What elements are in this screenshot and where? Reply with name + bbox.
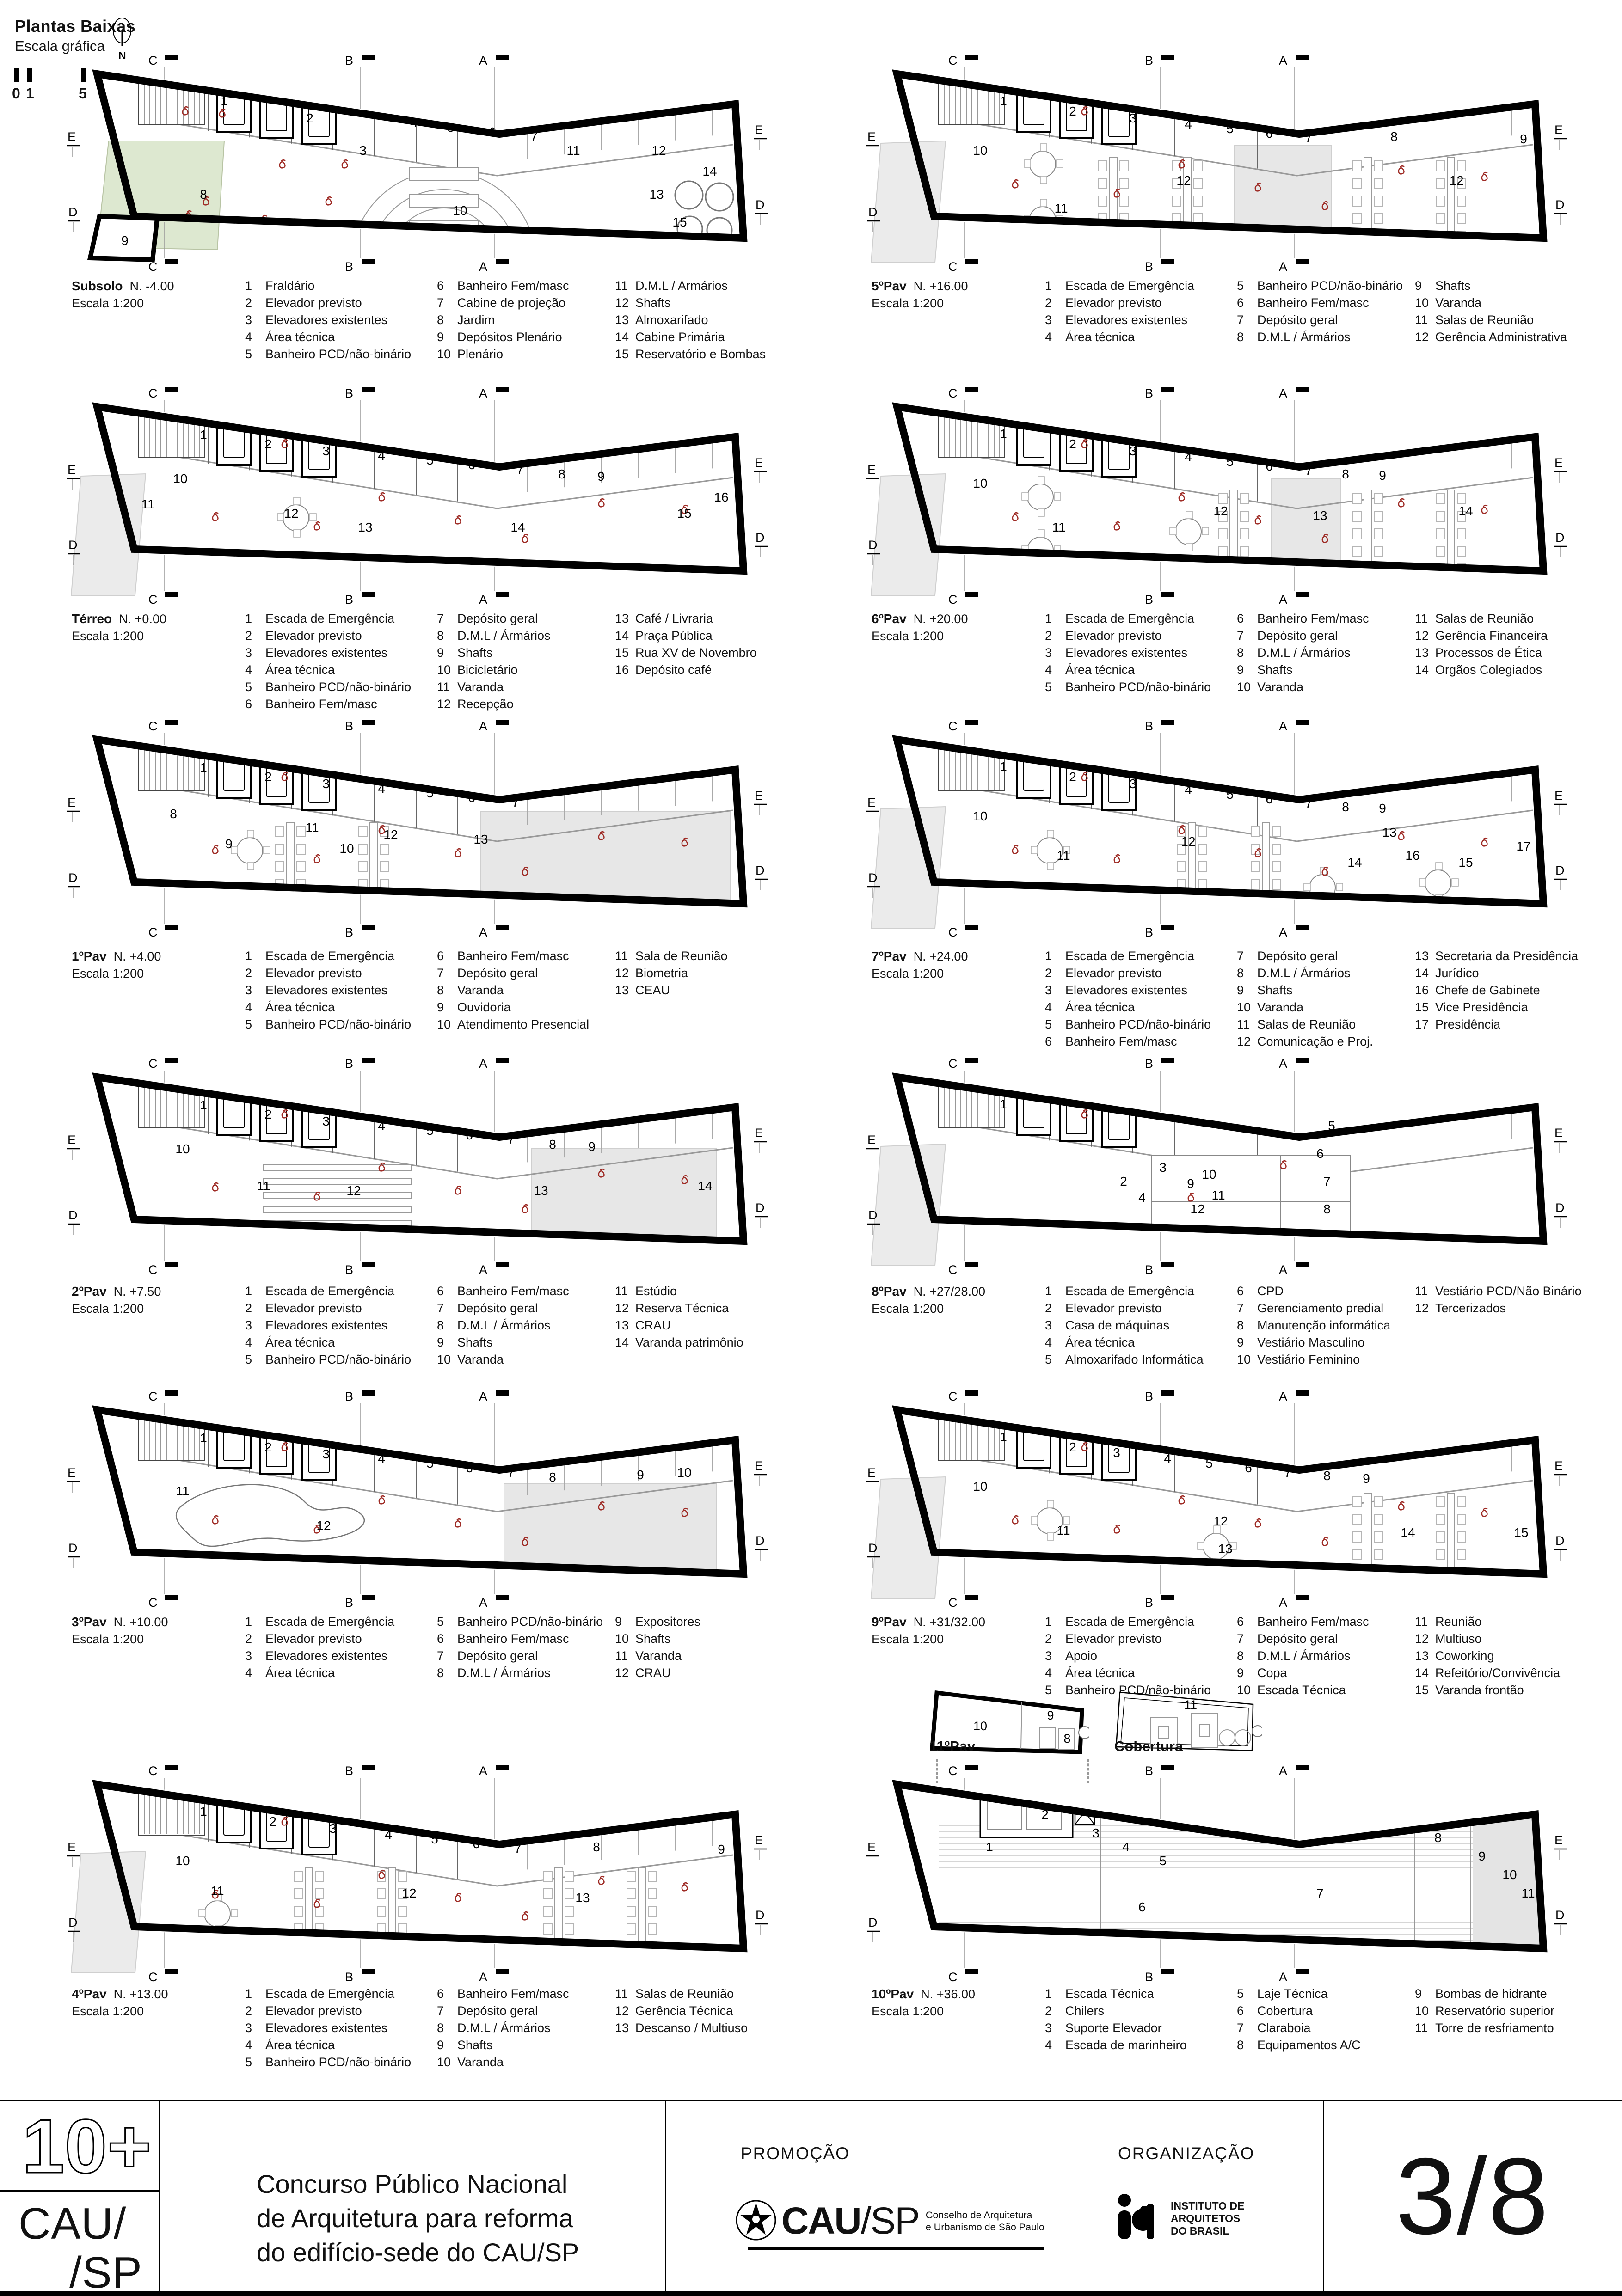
svg-text:B: B: [345, 1970, 353, 1984]
svg-text:2: 2: [264, 1107, 272, 1121]
svg-text:C: C: [948, 1970, 958, 1984]
legend-item: 16Chefe de Gabinete: [1415, 982, 1600, 999]
svg-text:1: 1: [1000, 1097, 1007, 1111]
svg-text:E: E: [867, 463, 876, 477]
svg-text:B: B: [345, 925, 353, 939]
legend-item: 12Reserva Técnica: [615, 1300, 800, 1317]
svg-text:7: 7: [1323, 1174, 1331, 1188]
svg-text:6: 6: [1266, 459, 1273, 473]
legend-item: 8Manutenção informática: [1237, 1317, 1422, 1334]
legend-item: 8D.M.L / Ármários: [437, 1317, 622, 1334]
svg-text:E: E: [68, 1466, 76, 1480]
legend-item: 12Gerência Financeira: [1415, 627, 1600, 644]
legend-item: 14Praça Pública: [615, 627, 800, 644]
svg-text:D: D: [756, 1201, 765, 1215]
svg-text:12: 12: [383, 827, 398, 842]
svg-text:1: 1: [200, 1431, 207, 1445]
svg-text:12: 12: [284, 506, 298, 520]
svg-text:A: A: [479, 1390, 487, 1403]
svg-text:C: C: [148, 1596, 158, 1610]
svg-text:9: 9: [588, 1139, 596, 1154]
svg-text:C: C: [948, 719, 958, 733]
svg-text:9: 9: [1047, 1708, 1054, 1722]
svg-text:B: B: [1145, 719, 1153, 733]
svg-text:3: 3: [322, 777, 330, 791]
svg-text:12: 12: [1176, 173, 1191, 188]
project-title: Concurso Público Nacional de Arquitetura…: [257, 2167, 579, 2270]
svg-text:1: 1: [1000, 759, 1007, 774]
svg-text:10: 10: [973, 476, 987, 490]
svg-text:4: 4: [1122, 1840, 1130, 1854]
iab-logo: INSTITUTO DE ARQUITETOS DO BRASIL: [1114, 2192, 1244, 2245]
legend-item: 11Varanda: [437, 679, 622, 696]
svg-text:A: A: [479, 1970, 487, 1984]
svg-text:3: 3: [322, 444, 330, 458]
svg-text:3: 3: [322, 1447, 330, 1461]
svg-text:4: 4: [1185, 783, 1192, 797]
svg-text:14: 14: [702, 164, 717, 178]
legend-column: 1Fraldário2Elevador previsto3Elevadores …: [245, 277, 430, 363]
scalebar-label: 0: [12, 85, 20, 102]
legend-item: 13Café / Livraria: [615, 610, 800, 627]
svg-text:2: 2: [1069, 1440, 1076, 1454]
svg-text:B: B: [345, 1057, 353, 1071]
legend-item: 1Escada de Emergência: [245, 948, 430, 965]
svg-text:4: 4: [1185, 450, 1192, 464]
legend-item: 7Cabine de projeção: [437, 294, 622, 312]
legend-column: 1Escada de Emergência2Elevador previsto3…: [245, 1985, 430, 2071]
svg-text:A: A: [479, 1596, 487, 1610]
svg-text:1: 1: [221, 94, 228, 108]
svg-text:13: 13: [1313, 508, 1327, 523]
legend-pav1: 1ºPav N. +4.00Escala 1:2001Escada de Eme…: [65, 948, 772, 1061]
legend-title: 8ºPav N. +27/28.00Escala 1:200: [872, 1283, 1038, 1317]
legend-item: 2Elevador previsto: [245, 1300, 430, 1317]
legend-item: 15Reservatório e Bombas: [615, 346, 800, 363]
svg-text:E: E: [1554, 1459, 1563, 1473]
legend-column: 6CPD7Gerenciamento predial8Manutenção in…: [1237, 1283, 1422, 1368]
legend-item: 15Rua XV de Novembro: [615, 644, 800, 661]
svg-text:2: 2: [1069, 104, 1076, 118]
svg-text:A: A: [1279, 1764, 1287, 1778]
svg-text:12: 12: [1449, 173, 1463, 188]
svg-text:1: 1: [200, 1804, 207, 1818]
plan-pav4: 12345678910111213CCBBAAEEDD: [65, 1757, 772, 1988]
svg-text:9: 9: [1187, 1176, 1194, 1191]
svg-text:D: D: [68, 1916, 78, 1929]
svg-text:D: D: [756, 1534, 765, 1548]
legend-item: 2Chilers: [1045, 2002, 1230, 2020]
svg-text:13: 13: [534, 1183, 548, 1198]
svg-text:10: 10: [453, 203, 467, 218]
legend-item: 11Reunião: [1415, 1613, 1600, 1630]
legend-item: 4Área técnica: [245, 999, 430, 1016]
svg-text:D: D: [1555, 863, 1565, 877]
svg-text:5: 5: [426, 453, 434, 467]
legend-column: 7Depósito geral8D.M.L / Ármários9Shafts1…: [1237, 948, 1422, 1050]
legend-item: 10Varanda: [437, 1351, 622, 1368]
legend-title: 2ºPav N. +7.50Escala 1:200: [72, 1283, 238, 1317]
svg-text:C: C: [148, 593, 158, 606]
legend-title: 3ºPav N. +10.00Escala 1:200: [72, 1613, 238, 1648]
legend-item: 2Elevador previsto: [245, 1630, 430, 1647]
svg-text:C: C: [948, 260, 958, 274]
svg-text:B: B: [1145, 260, 1153, 274]
legend-item: 5Laje Técnica: [1237, 1985, 1422, 2002]
legend-item: 8D.M.L / Ármários: [1237, 965, 1422, 982]
svg-text:3: 3: [1129, 444, 1137, 458]
legend-item: 11Salas de Reunião: [1415, 610, 1600, 627]
svg-text:C: C: [948, 54, 958, 67]
legend-item: 9Bombas de hidrante: [1415, 1985, 1600, 2002]
legend-column: 6Banheiro Fem/masc7Depósito geral8D.M.L …: [1237, 610, 1422, 696]
svg-text:A: A: [479, 54, 487, 67]
svg-text:7: 7: [514, 1841, 522, 1855]
svg-text:2: 2: [264, 1440, 272, 1454]
svg-text:A: A: [1279, 260, 1287, 274]
svg-text:B: B: [345, 1263, 353, 1277]
svg-text:9: 9: [597, 469, 605, 484]
legend-item: 3Casa de máquinas: [1045, 1317, 1230, 1334]
legend-item: 5Banheiro PCD/não-binário: [245, 1016, 430, 1033]
legend-item: 10Varanda: [1415, 294, 1600, 312]
svg-text:5: 5: [1159, 1854, 1167, 1868]
svg-text:8: 8: [1063, 1732, 1070, 1745]
legend-item: 3Elevadores existentes: [245, 644, 430, 661]
svg-text:10+: 10+: [22, 2108, 152, 2189]
svg-text:A: A: [479, 1057, 487, 1071]
legend-title: 6ºPav N. +20.00Escala 1:200: [872, 610, 1038, 645]
svg-text:D: D: [756, 531, 765, 545]
svg-text:1: 1: [1000, 1430, 1007, 1444]
svg-text:1: 1: [1000, 427, 1007, 441]
svg-text:10: 10: [175, 1854, 190, 1868]
svg-text:8: 8: [593, 1840, 600, 1854]
svg-text:4: 4: [1138, 1190, 1146, 1205]
svg-text:10: 10: [1502, 1867, 1517, 1882]
svg-text:D: D: [1555, 1534, 1565, 1548]
legend-item: 9Ouvidoria: [437, 999, 622, 1016]
svg-text:B: B: [1145, 1970, 1153, 1984]
svg-text:11: 11: [566, 143, 580, 158]
svg-text:11: 11: [210, 1884, 224, 1898]
plan-pav8: 123456789101112CCBBAAEEDD: [865, 1049, 1572, 1280]
svg-text:12: 12: [346, 1183, 361, 1198]
legend-item: 7Depósito geral: [437, 610, 622, 627]
legend-item: 10Plenário: [437, 346, 622, 363]
svg-text:11: 11: [1054, 201, 1068, 215]
svg-text:11: 11: [176, 1484, 189, 1498]
legend-item: 3Elevadores existentes: [245, 1317, 430, 1334]
legend-column: 1Escada de Emergência2Elevador previsto3…: [245, 1283, 430, 1368]
legend-item: 8Equipamentos A/C: [1237, 2037, 1422, 2054]
svg-text:E: E: [755, 1126, 763, 1140]
svg-text:4: 4: [378, 781, 385, 796]
svg-text:2: 2: [1120, 1174, 1127, 1188]
svg-text:12: 12: [402, 1886, 416, 1900]
legend-column: 1Escada de Emergência2Elevador previsto3…: [245, 610, 430, 713]
svg-text:D: D: [1555, 1201, 1565, 1215]
legend-item: 3Elevadores existentes: [245, 1647, 430, 1665]
legend-item: 14Jurídico: [1415, 965, 1600, 982]
legend-item: 6Banheiro Fem/masc: [437, 1985, 622, 2002]
legend-item: 13Almoxarifado: [615, 312, 800, 329]
svg-text:4: 4: [410, 116, 418, 130]
svg-text:9: 9: [225, 837, 233, 851]
svg-text:A: A: [479, 260, 487, 274]
svg-text:C: C: [948, 593, 958, 606]
svg-text:7: 7: [512, 795, 519, 809]
legend-item: 1Escada de Emergência: [245, 1613, 430, 1630]
plan-pav10: 1234567891011CCBBAAEEDD: [865, 1757, 1572, 1988]
svg-text:8: 8: [558, 467, 565, 481]
legend-item: 6Banheiro Fem/masc: [1045, 1033, 1230, 1050]
legend-item: 2Elevador previsto: [245, 294, 430, 312]
legend-item: 8D.M.L / Ármários: [437, 1665, 622, 1682]
legend-item: 6Banheiro Fem/masc: [437, 948, 622, 965]
svg-text:7: 7: [1316, 1886, 1324, 1900]
plan-pav1: 12345678910111213CCBBAAEEDD: [65, 712, 772, 943]
legend-item: 1Fraldário: [245, 277, 430, 294]
legend-column: 11Vestiário PCD/Não Binário12Tercerizado…: [1415, 1283, 1600, 1317]
svg-text:15: 15: [1514, 1525, 1528, 1540]
svg-text:7: 7: [1284, 1465, 1291, 1480]
legend-item: 13Coworking: [1415, 1647, 1600, 1665]
svg-text:7: 7: [507, 1465, 515, 1480]
svg-text:C: C: [948, 386, 958, 400]
svg-text:13: 13: [358, 520, 372, 534]
svg-text:12: 12: [1190, 1202, 1204, 1216]
promo-label: PROMOÇÃO: [741, 2144, 850, 2163]
legend-item: 1Escada de Emergência: [1045, 610, 1230, 627]
svg-text:A: A: [1279, 719, 1287, 733]
legend-item: 13Descanso / Multiuso: [615, 2020, 800, 2037]
legend-item: 7Depósito geral: [437, 2002, 622, 2020]
svg-text:5: 5: [431, 1832, 438, 1846]
svg-text:B: B: [1145, 925, 1153, 939]
legend-item: 12Recepção: [437, 696, 622, 713]
legend-item: 12Shafts: [615, 294, 800, 312]
svg-text:3: 3: [1129, 777, 1137, 791]
legend-item: 12CRAU: [615, 1665, 800, 1682]
svg-text:8: 8: [549, 1137, 556, 1151]
svg-text:E: E: [867, 1840, 876, 1854]
legend-column: 11Salas de Reunião12Gerência Técnica13De…: [615, 1985, 800, 2037]
legend-item: 11Vestiário PCD/Não Binário: [1415, 1283, 1600, 1300]
svg-text:C: C: [948, 1263, 958, 1277]
svg-text:C: C: [148, 1390, 158, 1403]
plan-pav9: 123456789101112131415CCBBAAEEDD: [865, 1382, 1572, 1613]
svg-text:9: 9: [1379, 801, 1386, 815]
svg-text:B: B: [345, 54, 353, 67]
svg-text:10: 10: [973, 143, 987, 158]
legend-item: 3Suporte Elevador: [1045, 2020, 1230, 2037]
svg-text:B: B: [345, 1764, 353, 1778]
svg-text:2: 2: [269, 1814, 276, 1829]
svg-text:E: E: [755, 456, 763, 470]
svg-text:B: B: [1145, 1263, 1153, 1277]
legend-item: 4Área técnica: [245, 1334, 430, 1351]
legend-item: 2Elevador previsto: [1045, 627, 1230, 644]
legend-column: 9Shafts10Varanda11Salas de Reunião12Gerê…: [1415, 277, 1600, 346]
titleblock-divider: [665, 2100, 666, 2296]
svg-text:14: 14: [510, 520, 525, 534]
legend-item: 2Elevador previsto: [245, 965, 430, 982]
svg-text:14: 14: [1458, 504, 1473, 518]
svg-text:C: C: [148, 1764, 158, 1778]
legend-column: 9Bombas de hidrante10Reservatório superi…: [1415, 1985, 1600, 2037]
legend-item: 11Torre de resfriamento: [1415, 2020, 1600, 2037]
svg-text:D: D: [756, 1908, 765, 1922]
svg-text:10: 10: [973, 1479, 987, 1494]
legend-item: 3Elevadores existentes: [245, 982, 430, 999]
svg-text:1: 1: [200, 1098, 207, 1112]
svg-text:9: 9: [637, 1468, 644, 1482]
svg-text:11: 11: [1052, 520, 1065, 534]
svg-text:B: B: [1145, 54, 1153, 67]
svg-text:16: 16: [1405, 848, 1419, 863]
legend-item: 4Área técnica: [1045, 329, 1230, 346]
legend-title: 7ºPav N. +24.00Escala 1:200: [872, 948, 1038, 982]
svg-text:A: A: [479, 1764, 487, 1778]
legend-item: 11Salas de Reunião: [615, 1985, 800, 2002]
svg-text:4: 4: [385, 1827, 392, 1842]
svg-text:9: 9: [1379, 468, 1386, 483]
legend-item: 10Reservatório superior: [1415, 2002, 1600, 2020]
svg-text:7: 7: [1305, 131, 1312, 145]
svg-text:2: 2: [264, 770, 272, 784]
legend-item: 1Escada de Emergência: [1045, 948, 1230, 965]
legend-item: 1Escada de Emergência: [245, 610, 430, 627]
legend-item: 12Gerência Administrativa: [1415, 329, 1600, 346]
leader-dashed-line: [936, 1759, 938, 1783]
legend-column: 6Banheiro Fem/masc7Depósito geral8D.M.L …: [1237, 1613, 1422, 1699]
iab-glyph-icon: [1114, 2192, 1165, 2245]
legend-title: 5ºPav N. +16.00Escala 1:200: [872, 277, 1038, 312]
legend-item: 8D.M.L / Ármários: [437, 2020, 622, 2037]
legend-item: 4Área técnica: [245, 661, 430, 679]
svg-text:B: B: [1145, 1057, 1153, 1071]
legend-column: 11Salas de Reunião12Gerência Financeira1…: [1415, 610, 1600, 679]
legend-item: 15Varanda frontão: [1415, 1682, 1600, 1699]
legend-item: 14Refeitório/Convivência: [1415, 1665, 1600, 1682]
svg-text:10: 10: [175, 1142, 190, 1156]
svg-text:C: C: [148, 386, 158, 400]
legend-item: 5Banheiro PCD/não-binário: [245, 346, 430, 363]
legend-column: 6Banheiro Fem/masc7Depósito geral8Varand…: [437, 948, 622, 1033]
svg-text:D: D: [756, 863, 765, 877]
svg-text:15: 15: [672, 215, 687, 229]
svg-text:6: 6: [1138, 1900, 1146, 1914]
legend-item: 9Copa: [1237, 1665, 1422, 1682]
plan-pav7: 1234567891011121314161517CCBBAAEEDD: [865, 712, 1572, 943]
svg-text:A: A: [479, 386, 487, 400]
svg-text:11: 11: [305, 820, 319, 835]
legend-item: 1Escada de Emergência: [1045, 1613, 1230, 1630]
legend-column: 6Banheiro Fem/masc7Cabine de projeção8Ja…: [437, 277, 622, 363]
legend-item: 4Área técnica: [245, 329, 430, 346]
cau-logo-rule: [748, 2247, 1044, 2250]
svg-text:A: A: [1279, 1970, 1287, 1984]
svg-text:B: B: [1145, 386, 1153, 400]
svg-text:8: 8: [200, 187, 207, 202]
svg-text:E: E: [68, 1133, 76, 1147]
legend-item: 7Depósito geral: [437, 965, 622, 982]
svg-text:6: 6: [473, 1837, 480, 1851]
legend-item: 17Presidência: [1415, 1016, 1600, 1033]
svg-text:2: 2: [264, 437, 272, 451]
svg-text:C: C: [948, 1390, 958, 1403]
svg-text:8: 8: [1323, 1202, 1331, 1216]
svg-text:11: 11: [1057, 848, 1070, 863]
legend-item: 10Bicicletário: [437, 661, 622, 679]
svg-text:4: 4: [378, 448, 385, 463]
svg-text:14: 14: [1347, 855, 1362, 869]
svg-text:5: 5: [1328, 1119, 1335, 1133]
legend-item: 2Elevador previsto: [1045, 1300, 1230, 1317]
legend-title: 1ºPav N. +4.00Escala 1:200: [72, 948, 238, 982]
svg-text:6: 6: [1266, 126, 1273, 141]
svg-text:D: D: [868, 205, 878, 219]
legend-item: 12Tercerizados: [1415, 1300, 1600, 1317]
svg-text:9: 9: [718, 1842, 725, 1856]
legend-item: 6Cobertura: [1237, 2002, 1422, 2020]
legend-item: 8D.M.L / Ármários: [437, 627, 622, 644]
svg-text:3: 3: [1159, 1160, 1167, 1175]
svg-text:D: D: [1555, 198, 1565, 212]
legend-item: 3Elevadores existentes: [1045, 312, 1230, 329]
svg-text:10: 10: [973, 809, 987, 823]
legend-item: 14Orgãos Colegiados: [1415, 661, 1600, 679]
svg-text:E: E: [68, 1840, 76, 1854]
legend-title: 9ºPav N. +31/32.00Escala 1:200: [872, 1613, 1038, 1648]
svg-text:E: E: [867, 1133, 876, 1147]
legend-item: 7Gerenciamento predial: [1237, 1300, 1422, 1317]
legend-item: 16Depósito café: [615, 661, 800, 679]
legend-pav6: 6ºPav N. +20.00Escala 1:2001Escada de Em…: [865, 610, 1572, 723]
svg-text:6: 6: [466, 1461, 473, 1475]
svg-text:E: E: [68, 796, 76, 809]
legend-column: 11Sala de Reunião12Biometria13CEAU: [615, 948, 800, 999]
legend-item: 1Escada Técnica: [1045, 1985, 1230, 2002]
svg-text:E: E: [867, 796, 876, 809]
svg-text:12: 12: [1213, 1514, 1228, 1528]
svg-text:B: B: [1145, 1596, 1153, 1610]
legend-item: 2Elevador previsto: [1045, 1630, 1230, 1647]
legend-item: 4Área técnica: [245, 1665, 430, 1682]
svg-text:A: A: [1279, 1390, 1287, 1403]
legend-title: Térreo N. +0.00Escala 1:200: [72, 610, 238, 645]
svg-text:B: B: [345, 1390, 353, 1403]
svg-text:11: 11: [257, 1179, 270, 1193]
svg-text:7: 7: [507, 1133, 515, 1147]
svg-text:2: 2: [306, 111, 313, 125]
legend-item: 13Processos de Ética: [1415, 644, 1600, 661]
legend-item: 3Elevadores existentes: [1045, 644, 1230, 661]
legend-column: 13Café / Livraria14Praça Pública15Rua XV…: [615, 610, 800, 679]
plan-pav2: 1234567891011121314CCBBAAEEDD: [65, 1049, 772, 1280]
svg-text:A: A: [479, 925, 487, 939]
svg-text:A: A: [1279, 1596, 1287, 1610]
legend-item: 13Secretaria da Presidência: [1415, 948, 1600, 965]
legend-column: 5Laje Técnica6Cobertura7Claraboia8Equipa…: [1237, 1985, 1422, 2054]
legend-item: 9Expositores: [615, 1613, 800, 1630]
svg-text:C: C: [148, 1970, 158, 1984]
legend-column: 6Banheiro Fem/masc7Depósito geral8D.M.L …: [437, 1283, 622, 1368]
legend-pav5: 5ºPav N. +16.00Escala 1:2001Escada de Em…: [865, 277, 1572, 391]
legend-item: 5Banheiro PCD/não-binário: [1045, 679, 1230, 696]
svg-text:E: E: [68, 130, 76, 144]
